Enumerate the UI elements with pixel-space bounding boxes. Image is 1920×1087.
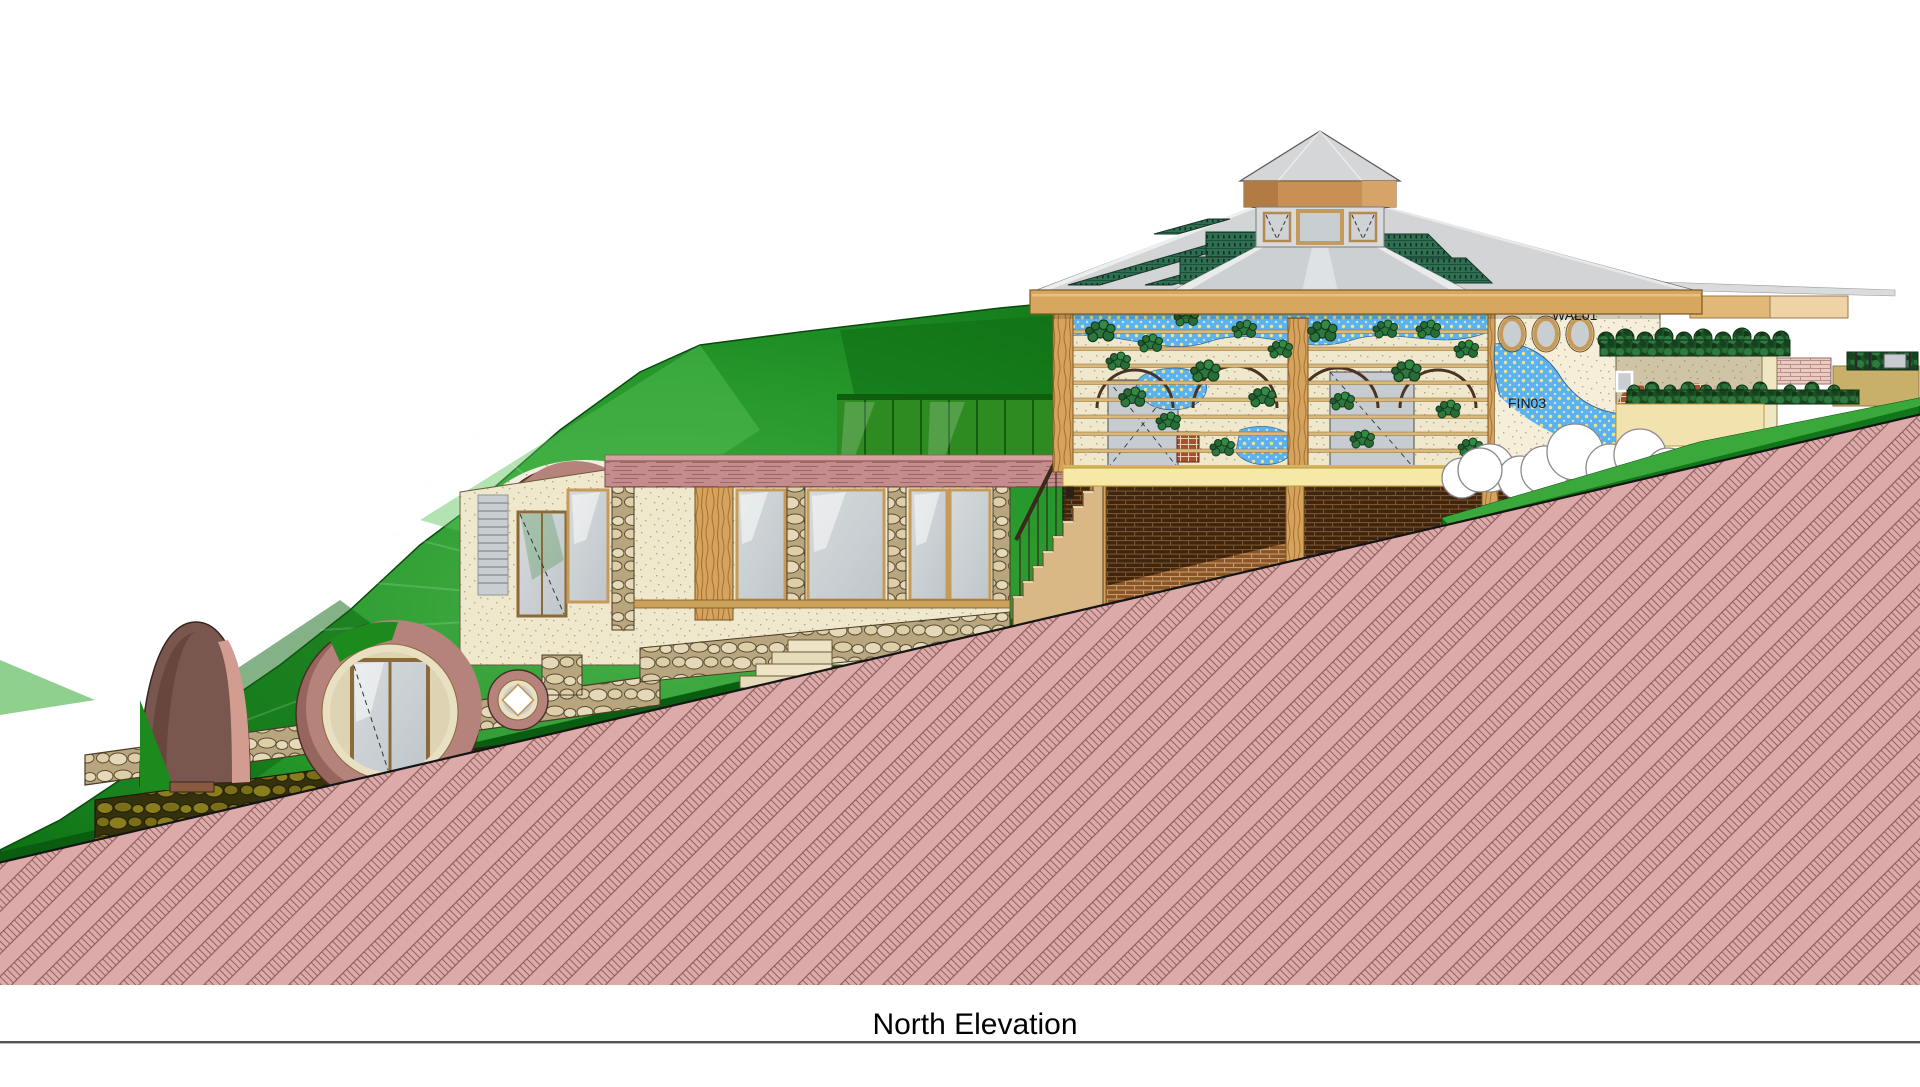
fascia-band	[1030, 290, 1702, 314]
trellis-right	[1847, 352, 1918, 370]
deck-fascia	[605, 461, 1063, 487]
cupola-window	[1264, 213, 1290, 241]
cupola-window	[1350, 213, 1376, 241]
stone-pillar	[888, 487, 906, 603]
pink-brick-wall	[1773, 358, 1831, 384]
center-post	[1288, 318, 1308, 470]
sunroom-window	[950, 490, 990, 600]
title-text: North Elevation	[872, 1008, 1077, 1041]
floor-band	[1063, 468, 1488, 486]
north-elevation-drawing: WAL01 FIN03	[0, 0, 1920, 1087]
wood-post	[695, 472, 733, 620]
elevation-sheet: WAL01 FIN03	[0, 0, 1920, 1087]
cupola-window	[1298, 211, 1342, 243]
title-divider	[0, 1041, 1920, 1043]
louver-window	[478, 495, 508, 595]
brick-pier	[1177, 432, 1199, 462]
stone-pillar	[612, 480, 634, 630]
corner-post	[1053, 312, 1073, 472]
stone-pillar	[993, 487, 1010, 603]
finish-tag-label: FIN03	[1508, 395, 1546, 411]
stone-pillar	[787, 487, 805, 603]
